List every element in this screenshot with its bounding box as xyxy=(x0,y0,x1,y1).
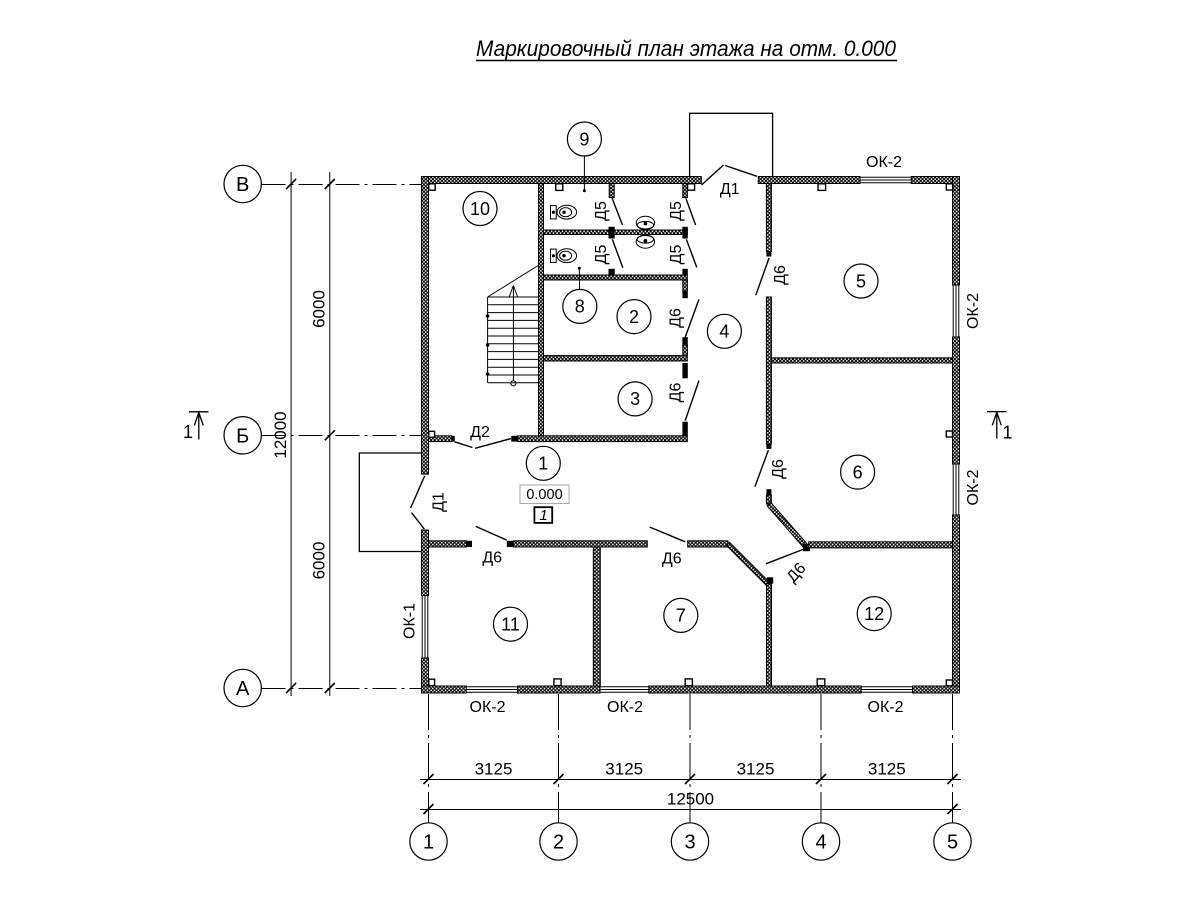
svg-text:5: 5 xyxy=(947,832,958,854)
svg-text:ОК-2: ОК-2 xyxy=(607,699,643,716)
svg-text:3125: 3125 xyxy=(737,760,775,779)
svg-text:12000: 12000 xyxy=(271,411,290,458)
svg-text:ОК-2: ОК-2 xyxy=(965,293,982,329)
svg-text:3125: 3125 xyxy=(605,760,643,779)
svg-text:Д5: Д5 xyxy=(593,201,610,221)
svg-text:6000: 6000 xyxy=(310,542,329,580)
svg-text:12500: 12500 xyxy=(667,790,714,809)
svg-text:3125: 3125 xyxy=(475,760,513,779)
svg-text:ОК-2: ОК-2 xyxy=(868,699,904,716)
svg-text:Д2: Д2 xyxy=(470,424,490,441)
svg-text:ОК-1: ОК-1 xyxy=(402,603,419,639)
svg-text:А: А xyxy=(236,678,250,700)
svg-text:0.000: 0.000 xyxy=(526,487,562,503)
svg-text:Д6: Д6 xyxy=(770,459,787,479)
svg-text:Д6: Д6 xyxy=(662,551,682,568)
svg-text:1: 1 xyxy=(538,454,548,474)
svg-text:1: 1 xyxy=(183,422,193,442)
svg-text:11: 11 xyxy=(501,615,520,635)
svg-text:ОК-2: ОК-2 xyxy=(866,154,902,171)
svg-text:4: 4 xyxy=(815,832,826,854)
svg-text:1: 1 xyxy=(423,832,434,854)
svg-text:1: 1 xyxy=(539,507,547,524)
svg-text:1: 1 xyxy=(1002,423,1012,443)
svg-text:Д5: Д5 xyxy=(668,245,685,265)
svg-text:ОК-2: ОК-2 xyxy=(470,699,506,716)
svg-text:Д1: Д1 xyxy=(431,492,448,512)
svg-text:8: 8 xyxy=(575,297,585,317)
svg-text:6000: 6000 xyxy=(310,290,329,328)
svg-text:Д6: Д6 xyxy=(668,308,685,328)
svg-text:12: 12 xyxy=(864,604,884,624)
svg-text:3125: 3125 xyxy=(868,760,906,779)
svg-text:Д6: Д6 xyxy=(482,550,502,567)
svg-text:10: 10 xyxy=(470,199,490,219)
svg-text:6: 6 xyxy=(853,462,863,482)
svg-text:ОК-2: ОК-2 xyxy=(965,469,982,505)
svg-text:3: 3 xyxy=(630,389,640,409)
svg-text:4: 4 xyxy=(719,322,729,342)
svg-text:Маркировочный план этажа на от: Маркировочный план этажа на отм. 0.000 xyxy=(476,36,896,61)
svg-text:Д6: Д6 xyxy=(772,265,789,285)
svg-text:Д5: Д5 xyxy=(593,245,610,265)
svg-text:Д6: Д6 xyxy=(668,383,685,403)
svg-text:Д1: Д1 xyxy=(720,181,740,198)
svg-text:3: 3 xyxy=(684,832,695,854)
svg-text:2: 2 xyxy=(629,307,639,327)
svg-text:5: 5 xyxy=(856,271,866,291)
svg-text:9: 9 xyxy=(579,129,589,149)
svg-text:2: 2 xyxy=(553,832,564,854)
svg-text:В: В xyxy=(236,174,249,196)
svg-text:Д5: Д5 xyxy=(668,201,685,221)
svg-text:7: 7 xyxy=(676,606,686,626)
svg-text:Б: Б xyxy=(236,425,249,447)
